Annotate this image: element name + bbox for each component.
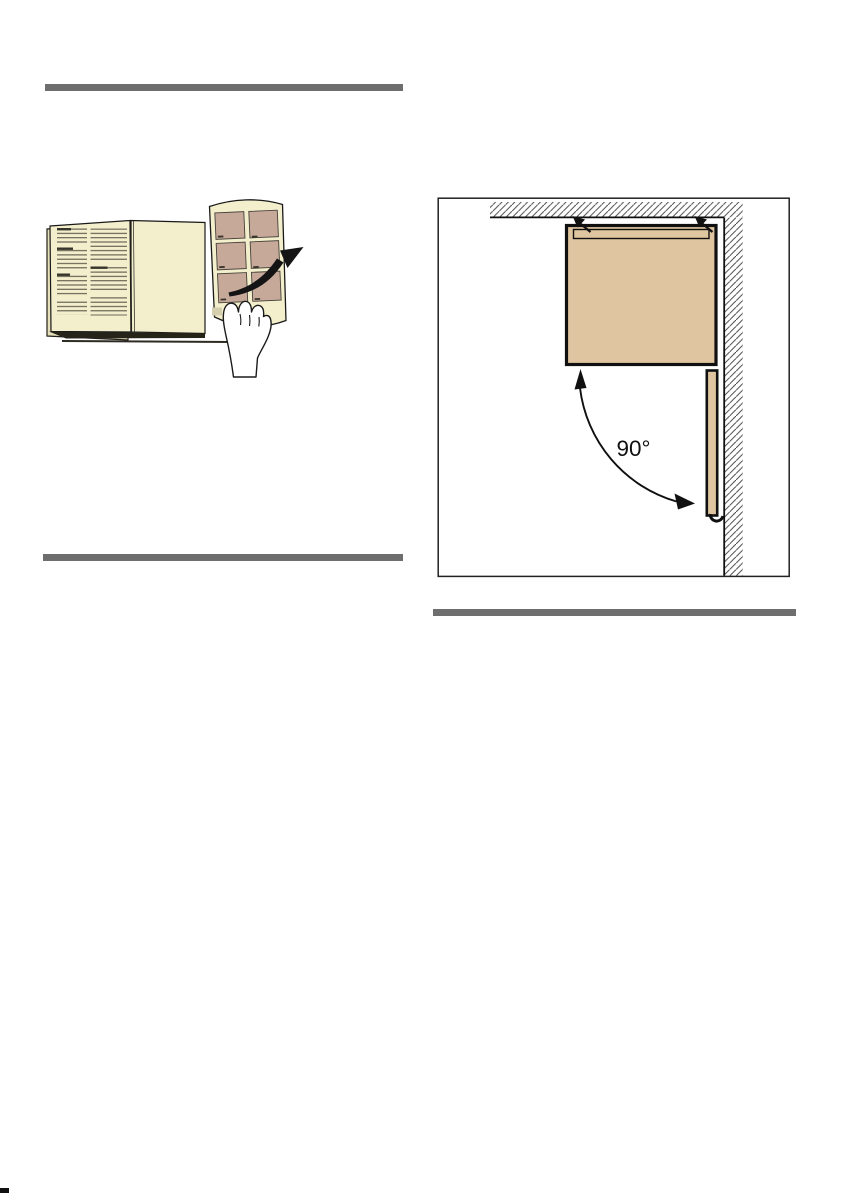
wall-top-hatch [490, 202, 743, 217]
grid-panel [215, 212, 245, 240]
page-turn-illustration [40, 190, 315, 385]
open-door [707, 371, 717, 516]
book-right-page [131, 221, 205, 334]
section-divider-bottom-left [43, 554, 403, 561]
grid-panel [217, 273, 247, 303]
print-registration-mark [0, 1188, 9, 1193]
grid-panel [249, 210, 279, 238]
section-divider-right [433, 609, 796, 616]
angle-label: 90° [616, 436, 650, 461]
book-back-cover-edge [62, 341, 232, 342]
door-opening-diagram: 90° [436, 196, 792, 579]
hand-icon [223, 301, 271, 377]
appliance-top-view [567, 226, 717, 365]
section-divider-top-left [45, 84, 403, 91]
appliance-front-strip [574, 230, 710, 239]
left-page-text-columns [57, 228, 127, 316]
grid-panel [216, 242, 246, 270]
page-bottom-tab [212, 308, 222, 316]
wall-side-hatch [724, 217, 743, 575]
manual-page: 90° [0, 0, 841, 1193]
